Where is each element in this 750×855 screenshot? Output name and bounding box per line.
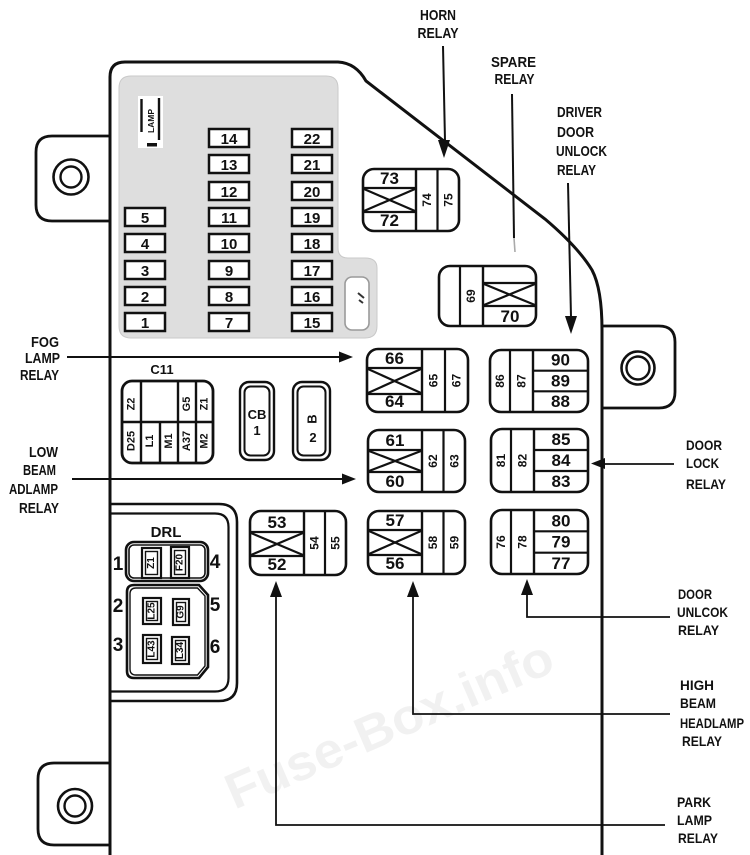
svg-text:15: 15 [304,315,321,332]
svg-text:52: 52 [268,555,287,574]
svg-text:4: 4 [141,236,150,253]
svg-text:75: 75 [441,193,455,207]
svg-text:RELAY: RELAY [678,622,720,638]
svg-text:20: 20 [304,184,321,201]
svg-text:12: 12 [221,184,238,201]
svg-text:18: 18 [304,236,321,253]
svg-text:19: 19 [304,210,321,227]
svg-text:LOW: LOW [29,444,59,461]
svg-text:22: 22 [304,131,321,148]
svg-text:87: 87 [515,374,529,388]
svg-text:67: 67 [450,374,464,388]
svg-text:90: 90 [551,351,570,370]
svg-text:60: 60 [386,472,405,491]
svg-text:66: 66 [385,349,404,368]
svg-text:RELAY: RELAY [495,71,535,88]
svg-text:Z1: Z1 [146,557,157,569]
svg-text:LAMP: LAMP [25,350,60,367]
svg-text:72: 72 [380,211,399,230]
svg-text:BEAM: BEAM [23,462,56,479]
svg-text:F20: F20 [175,553,186,571]
svg-text:64: 64 [385,392,404,411]
svg-text:1: 1 [113,554,124,575]
svg-text:74: 74 [420,193,434,207]
svg-text:G5: G5 [181,397,193,412]
svg-text:HEADLAMP: HEADLAMP [680,715,744,731]
svg-text:2: 2 [113,596,124,617]
svg-text:21: 21 [304,157,321,174]
svg-text:1: 1 [141,315,149,332]
svg-text:57: 57 [386,511,405,530]
svg-text:5: 5 [210,595,221,616]
svg-text:UNLCOK: UNLCOK [677,604,728,620]
svg-text:10: 10 [221,236,238,253]
svg-text:2: 2 [141,289,149,306]
svg-text:RELAY: RELAY [678,830,719,846]
svg-text:LAMP: LAMP [677,812,712,828]
svg-text:81: 81 [494,454,508,468]
svg-text:69: 69 [464,289,478,303]
svg-text:RELAY: RELAY [418,25,459,42]
svg-text:M1: M1 [163,433,175,448]
svg-text:86: 86 [493,374,507,388]
svg-text:61: 61 [386,431,405,450]
svg-text:73: 73 [380,169,399,188]
svg-text:88: 88 [551,392,570,411]
svg-text:RELAY: RELAY [686,476,727,492]
svg-text:78: 78 [516,535,530,549]
svg-text:BEAM: BEAM [680,695,716,711]
svg-text:3: 3 [141,263,149,280]
svg-text:59: 59 [447,536,461,550]
svg-text:80: 80 [552,511,571,530]
svg-text:RELAY: RELAY [19,500,59,517]
svg-text:Z1: Z1 [199,398,211,411]
svg-text:A37: A37 [181,431,193,451]
svg-text:1: 1 [253,423,260,438]
svg-text:63: 63 [447,454,461,468]
svg-text:7: 7 [225,315,233,332]
svg-text:L1: L1 [144,435,156,448]
svg-text:58: 58 [426,536,440,550]
svg-text:82: 82 [516,454,530,468]
svg-text:70: 70 [501,307,520,326]
svg-text:11: 11 [221,210,237,227]
svg-text:RELAY: RELAY [557,162,596,179]
svg-text:LOCK: LOCK [686,455,719,471]
svg-text:DRIVER: DRIVER [557,104,602,121]
svg-text:79: 79 [552,533,571,552]
svg-text:77: 77 [552,554,571,573]
svg-text:56: 56 [386,554,405,573]
svg-text:62: 62 [426,454,440,468]
svg-text:85: 85 [552,430,571,449]
svg-text:Z2: Z2 [126,398,138,411]
svg-text:CB: CB [248,407,267,422]
svg-text:4: 4 [210,552,221,573]
svg-text:53: 53 [268,513,287,532]
svg-text:PARK: PARK [677,794,711,810]
svg-text:LAMP: LAMP [146,109,156,133]
svg-text:B: B [305,414,320,423]
svg-text:L34: L34 [175,641,186,659]
svg-text:M2: M2 [199,433,211,448]
svg-text:89: 89 [551,371,570,390]
svg-text:16: 16 [304,289,321,306]
svg-text:9: 9 [225,263,233,280]
svg-text:17: 17 [304,263,321,280]
svg-text:HIGH: HIGH [680,677,714,693]
svg-text:L43: L43 [147,640,158,658]
svg-text:6: 6 [210,637,221,658]
svg-text:HORN: HORN [420,7,456,24]
svg-text:G9: G9 [176,605,187,619]
svg-text:83: 83 [552,472,571,491]
svg-text:UNLOCK: UNLOCK [556,143,607,160]
svg-text:65: 65 [427,374,441,388]
svg-text:8: 8 [225,289,233,306]
svg-text:D25: D25 [126,431,138,451]
svg-text:55: 55 [329,536,343,550]
svg-text:DOOR: DOOR [678,586,712,602]
svg-text:DOOR: DOOR [557,124,594,141]
svg-text:ADLAMP: ADLAMP [9,481,58,498]
svg-text:DRL: DRL [151,524,182,541]
svg-text:L25: L25 [147,602,158,620]
svg-text:SPARE: SPARE [491,54,536,71]
svg-text:13: 13 [221,157,238,174]
svg-text:FOG: FOG [31,334,59,351]
svg-text:DOOR: DOOR [686,437,722,453]
svg-text:5: 5 [141,210,149,227]
svg-text:14: 14 [221,131,238,148]
svg-text:2: 2 [309,430,316,445]
svg-text:RELAY: RELAY [682,733,723,749]
svg-text:54: 54 [308,536,322,550]
svg-text:C11: C11 [150,362,173,377]
svg-text:RELAY: RELAY [20,367,59,384]
svg-text:84: 84 [552,451,571,470]
svg-text:76: 76 [494,535,508,549]
svg-text:3: 3 [113,635,124,656]
